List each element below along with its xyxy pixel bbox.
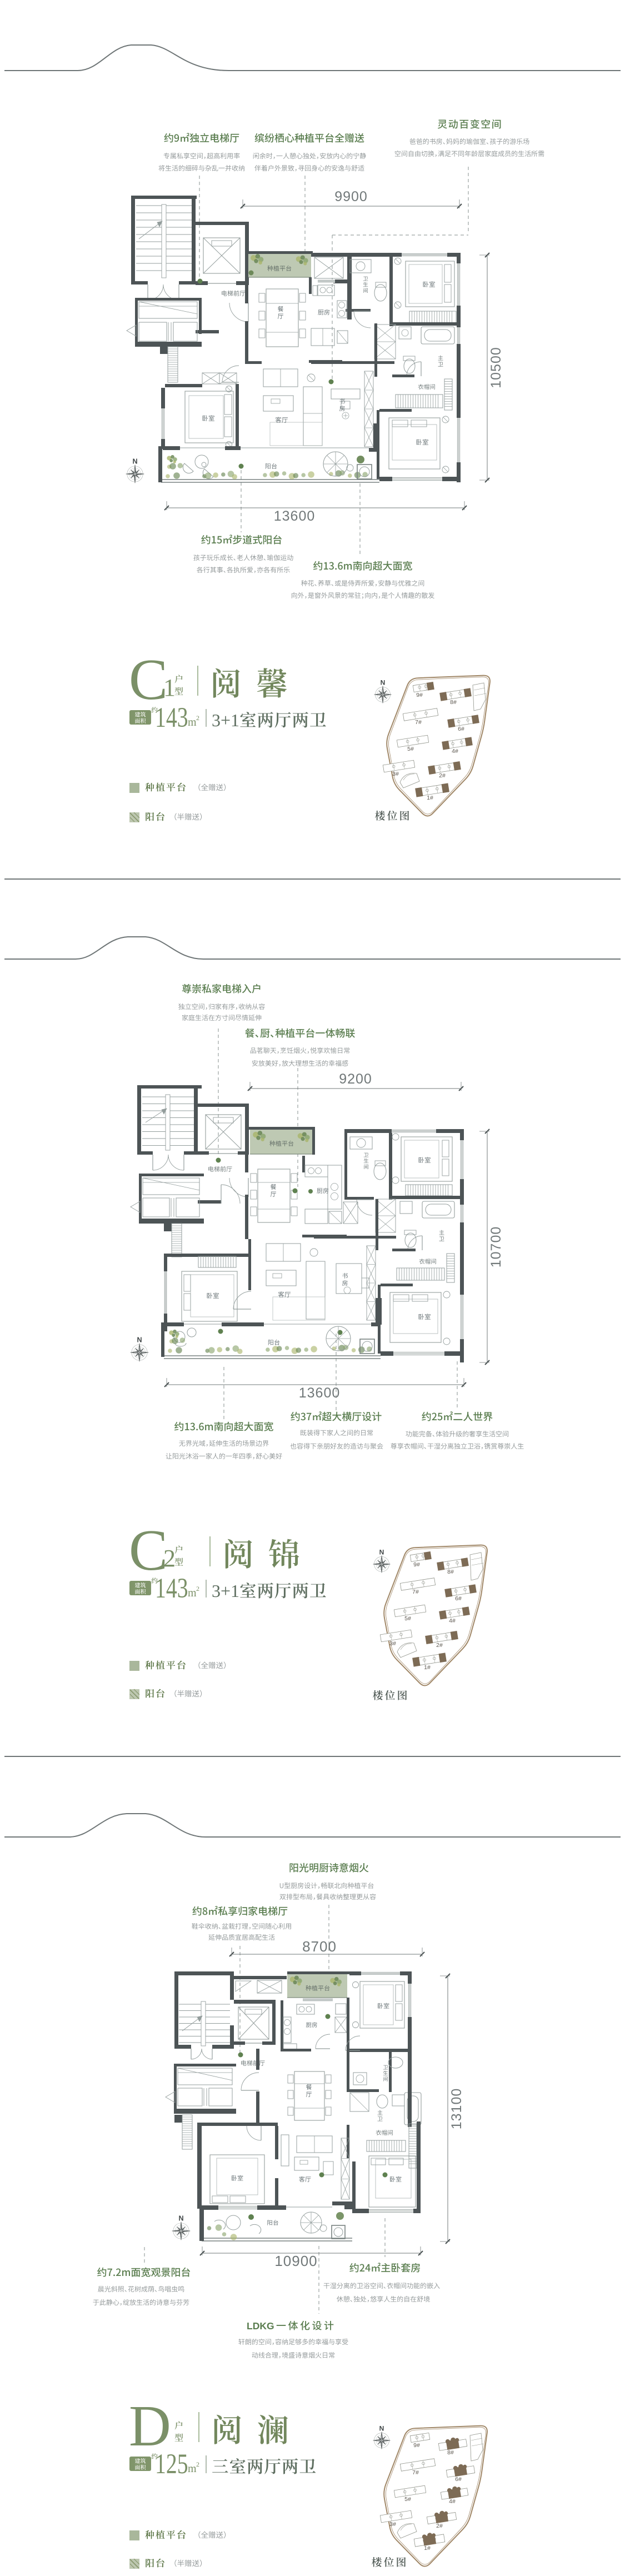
svg-text:3#: 3# (392, 771, 399, 777)
svg-text:N: N (379, 2425, 384, 2433)
svg-text:7#: 7# (415, 719, 422, 726)
svg-text:1#: 1# (424, 2545, 431, 2552)
svg-text:143: 143 (155, 1572, 188, 1604)
svg-text:9200: 9200 (339, 1071, 372, 1087)
svg-text:1: 1 (163, 674, 176, 701)
svg-text:9#: 9# (416, 692, 423, 698)
svg-text:2#: 2# (439, 772, 446, 779)
svg-text:8#: 8# (447, 1569, 454, 1575)
svg-text:4#: 4# (449, 2498, 456, 2505)
svg-text:2: 2 (163, 1545, 176, 1572)
svg-text:10900: 10900 (274, 2253, 317, 2269)
svg-text:m: m (188, 2463, 197, 2475)
svg-text:3#: 3# (389, 2521, 396, 2528)
svg-text:9900: 9900 (334, 189, 368, 204)
svg-text:9#: 9# (413, 1561, 420, 1568)
svg-text:1#: 1# (424, 1664, 431, 1671)
svg-text:8700: 8700 (302, 1938, 337, 1955)
svg-text:3+1: 3+1 (212, 710, 239, 730)
svg-text:m: m (188, 1587, 197, 1599)
svg-text:143: 143 (155, 701, 188, 733)
svg-text:3#: 3# (389, 1640, 396, 1647)
svg-text:6#: 6# (458, 726, 464, 732)
svg-text:LDKG: LDKG (247, 2320, 274, 2332)
svg-text:4#: 4# (452, 748, 458, 755)
svg-text:13600: 13600 (274, 508, 316, 524)
svg-text:2: 2 (196, 2460, 199, 2468)
svg-text:2#: 2# (436, 1642, 443, 1649)
svg-text:6#: 6# (455, 1595, 462, 1602)
svg-text:3+1: 3+1 (212, 1581, 239, 1601)
svg-text:10700: 10700 (488, 1226, 504, 1268)
svg-text:5#: 5# (407, 746, 414, 752)
svg-text:4#: 4# (449, 1618, 456, 1624)
svg-text:7#: 7# (412, 1589, 419, 1595)
svg-text:2: 2 (196, 1585, 199, 1592)
svg-text:8#: 8# (447, 2449, 454, 2456)
svg-text:7#: 7# (412, 2469, 419, 2476)
svg-text:5#: 5# (404, 1615, 411, 1622)
svg-text:13100: 13100 (449, 2088, 464, 2130)
svg-text:N: N (137, 1336, 142, 1344)
svg-text:9#: 9# (413, 2442, 420, 2449)
svg-text:2: 2 (196, 714, 199, 722)
svg-text:N: N (178, 2215, 183, 2223)
svg-text:m: m (188, 716, 197, 728)
svg-text:125: 125 (155, 2448, 188, 2479)
svg-text:5#: 5# (404, 2496, 411, 2503)
svg-text:N: N (132, 458, 137, 466)
svg-text:1#: 1# (427, 795, 433, 801)
svg-text:2#: 2# (436, 2523, 443, 2529)
svg-text:N: N (381, 679, 386, 687)
svg-text:8#: 8# (450, 699, 457, 706)
svg-text:13600: 13600 (299, 1385, 341, 1401)
svg-text:N: N (379, 1549, 384, 1556)
svg-text:6#: 6# (455, 2476, 462, 2483)
svg-text:10500: 10500 (488, 347, 504, 388)
